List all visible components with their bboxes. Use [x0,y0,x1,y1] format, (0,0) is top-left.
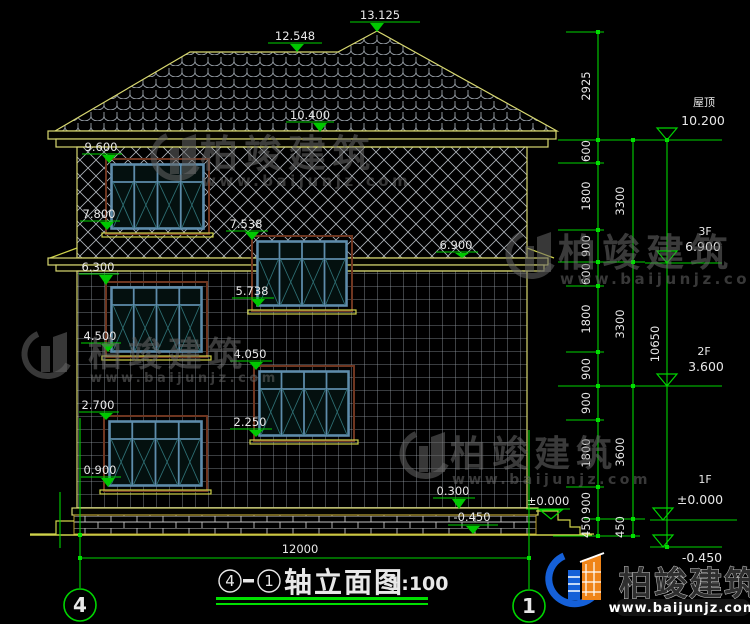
title-underline [216,603,428,605]
svg-text:-0.450: -0.450 [453,510,490,524]
dim-label: 450 [579,516,593,538]
dim-label: 2925 [579,71,593,100]
svg-text:10.400: 10.400 [290,108,330,122]
elevation-marker: 12.548 [268,29,322,52]
svg-text:柏竣建筑: 柏竣建筑 [450,434,618,475]
svg-text:9.600: 9.600 [85,140,118,154]
svg-text:12.548: 12.548 [275,29,315,43]
svg-text:7.800: 7.800 [83,207,116,221]
watermark: 柏竣建筑 www.baijunjz.com [508,231,750,288]
dim-label: 10650 [648,326,662,363]
elevation-drawing: 13.125 12.548 10.400 9.600 7.800 7.538 6… [0,0,750,624]
window-stair-upper [248,236,356,314]
svg-text:6.300: 6.300 [82,260,115,274]
svg-text:±0.000: ±0.000 [677,492,723,507]
steps-left [30,521,74,534]
svg-text:0.900: 0.900 [84,463,117,477]
svg-text:www.baijunjz.com: www.baijunjz.com [452,472,651,488]
dimension-chain-overall: 10650 [648,138,669,549]
svg-text:-0.450: -0.450 [682,550,722,565]
dim-label: 900 [579,358,593,380]
svg-text:1F: 1F [698,473,711,486]
svg-text:3.600: 3.600 [688,359,724,374]
dim-label: 900 [579,492,593,514]
svg-text:5.738: 5.738 [236,284,269,298]
dim-label: 3300 [613,309,627,338]
level-marker-ground: -0.450 [650,535,722,565]
svg-text:www.baijunjz.com: www.baijunjz.com [202,172,411,190]
svg-text:www.baijunjz.com: www.baijunjz.com [90,371,279,386]
svg-text:2.250: 2.250 [234,415,267,429]
svg-text:1: 1 [264,572,274,590]
svg-text:www.baijunjz.com: www.baijunjz.com [609,601,750,616]
svg-text:13.125: 13.125 [360,8,400,22]
dim-label: 1800 [579,304,593,333]
watermark-logo-icon [24,332,68,376]
brand-logo-icon [549,553,604,604]
overall-width-label: 12000 [282,542,319,556]
dim-label: 450 [613,516,627,538]
watermark: 柏竣建筑 www.baijunjz.com [24,332,278,386]
roof [48,31,557,147]
level-marker-1f: 1F ±0.000 [650,473,737,520]
svg-text:4: 4 [225,572,235,590]
svg-text:屋顶: 屋顶 [693,96,715,109]
svg-text:柏竣建筑: 柏竣建筑 [88,335,248,375]
svg-text:6.900: 6.900 [440,238,473,252]
svg-text:柏竣建筑: 柏竣建筑 [558,231,734,275]
svg-text:柏竣建筑: 柏竣建筑 [619,564,750,603]
drawing-title: 轴立面图 [284,566,404,599]
title-dash [243,579,254,583]
dim-label: 900 [579,392,593,414]
dim-label: 600 [579,140,593,162]
svg-text:2.700: 2.700 [82,398,115,412]
grid-bubble-1-label: 1 [522,594,536,618]
dim-label: 1800 [579,181,593,210]
svg-text:2F: 2F [697,345,710,358]
title-block: 4 1 轴立面图 1:100 [216,566,448,605]
drawing-scale: 1:100 [388,573,448,595]
grid-bubble-4-label: 4 [73,593,87,617]
title-underline [216,597,428,600]
plinth [30,508,594,535]
svg-text:www.baijunjz.com: www.baijunjz.com [560,270,750,288]
svg-text:10.200: 10.200 [681,113,725,128]
svg-text:±0.000: ±0.000 [527,494,570,508]
dim-label: 3300 [613,186,627,215]
window-1f-left [100,416,211,494]
svg-text:7.538: 7.538 [230,217,263,231]
svg-text:柏竣建筑: 柏竣建筑 [200,132,376,176]
elevation-marker: 13.125 [350,8,420,32]
level-marker-roof: 屋顶 10.200 [645,96,725,140]
